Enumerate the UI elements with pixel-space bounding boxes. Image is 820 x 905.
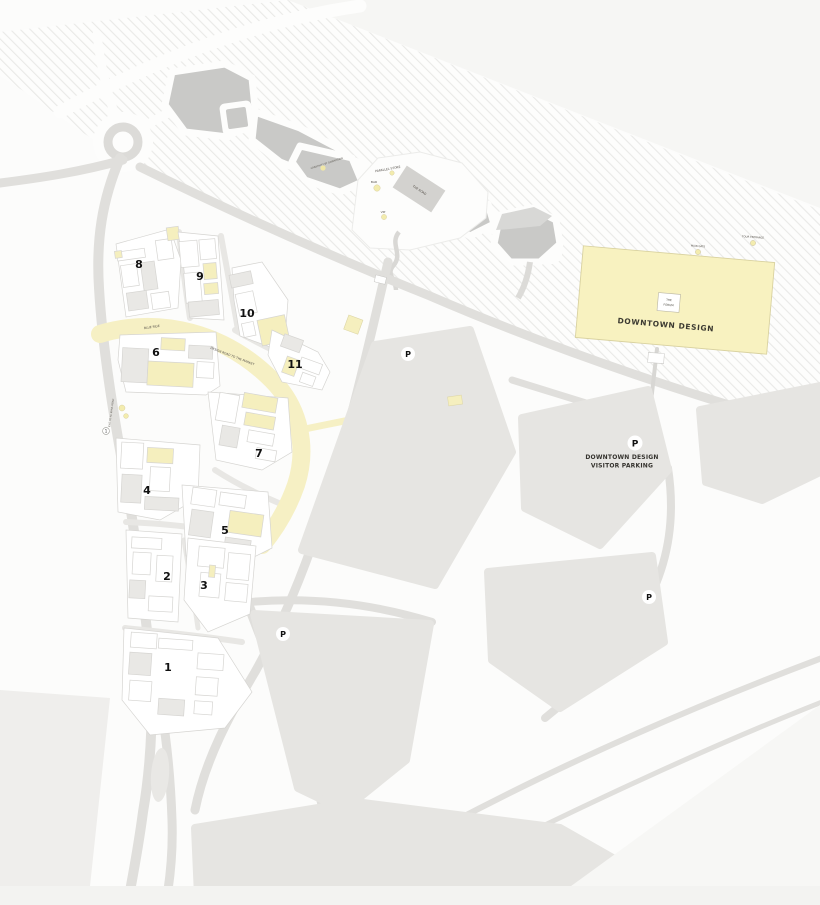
- parking-symbol: P: [405, 350, 411, 359]
- gate-number: 1: [105, 429, 108, 434]
- parking-symbol: P: [280, 630, 286, 639]
- parking-marker: P: [628, 436, 643, 451]
- visitor-parking-label: DOWNTOWN DESIGN VISITOR PARKING: [585, 454, 658, 470]
- gate-badge: 1: [103, 428, 110, 435]
- block-number-4: 4: [143, 484, 151, 497]
- bar-label: BAR: [371, 180, 377, 184]
- vip-label: VIP: [381, 210, 386, 214]
- parking-marker: P: [276, 627, 290, 641]
- block-number-11: 11: [287, 358, 302, 371]
- visitor-parking-line1: DOWNTOWN DESIGN: [585, 454, 658, 461]
- block-6: [118, 332, 220, 395]
- block-number-2: 2: [163, 570, 171, 583]
- parking-symbol: P: [646, 593, 652, 602]
- block-number-5: 5: [221, 524, 229, 537]
- block-number-10: 10: [239, 307, 255, 320]
- site-map: THE FORUM DOWNTOWN DESIGN MAIN GATE TOUR…: [0, 0, 820, 905]
- parking-marker: P: [401, 347, 415, 361]
- block-number-7: 7: [255, 447, 263, 460]
- visitor-parking-line2: VISITOR PARKING: [591, 463, 653, 470]
- block-number-3: 3: [200, 579, 208, 592]
- block-2: [126, 530, 182, 622]
- downtown-design-hall: THE FORUM DOWNTOWN DESIGN: [575, 246, 774, 354]
- parking-marker: P: [642, 590, 656, 604]
- forum-label-line1: THE: [665, 298, 672, 303]
- block-7: [208, 388, 292, 470]
- bottom-outside-strip: [0, 886, 820, 905]
- site-map-page: THE FORUM DOWNTOWN DESIGN MAIN GATE TOUR…: [0, 0, 820, 905]
- block-number-6: 6: [152, 346, 160, 359]
- block-number-1: 1: [164, 661, 172, 674]
- block-number-9: 9: [196, 270, 204, 283]
- parking-symbol: P: [632, 439, 639, 449]
- block-number-8: 8: [135, 258, 143, 271]
- parcel-e: [700, 386, 820, 500]
